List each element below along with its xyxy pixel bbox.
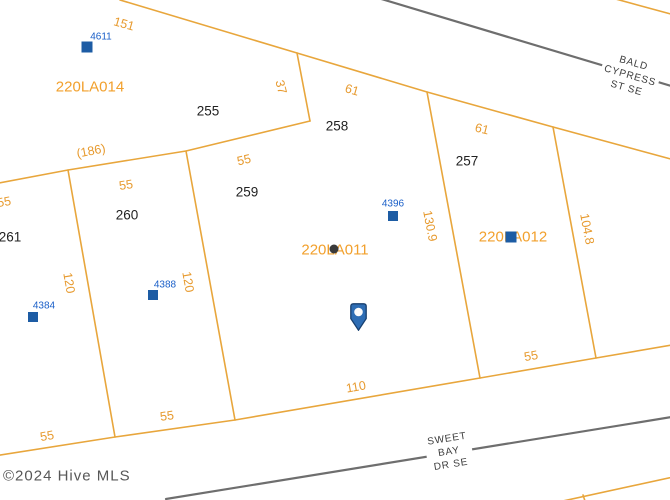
lot-number-258: 258 xyxy=(326,119,349,134)
lot-number-259: 259 xyxy=(236,185,259,200)
address-marker-4388[interactable] xyxy=(148,290,158,300)
parcel-label-220la014: 220LA014 xyxy=(56,79,124,96)
copyright-watermark: ©2024 Hive MLS xyxy=(3,468,131,485)
boundary-southeast-corner xyxy=(549,476,670,500)
address-label-4384: 4384 xyxy=(33,301,55,312)
road-sweet-bay-line xyxy=(166,416,670,499)
dimension-55-lot260-bottom: 55 xyxy=(159,408,175,424)
lot-number-257: 257 xyxy=(456,154,479,169)
boundary-186-line xyxy=(0,121,310,184)
address-label-4396: 4396 xyxy=(382,199,404,210)
lot-number-261: 261 xyxy=(0,230,21,245)
street-label-sweet-bay: SWEET BAY DR SE xyxy=(423,428,474,476)
dimension-55-lot261-bottom: 55 xyxy=(39,428,55,444)
address-label-4611: 4611 xyxy=(90,32,112,43)
map-pin-dot xyxy=(354,308,363,317)
address-marker-4611[interactable] xyxy=(82,42,93,53)
dimension-55-lot260-top: 55 xyxy=(118,177,134,193)
boundary-south xyxy=(0,344,670,456)
lot-number-255: 255 xyxy=(197,104,220,119)
lot-number-260: 260 xyxy=(116,208,139,223)
boundary-lot255-east xyxy=(297,53,310,121)
map-pin-icon[interactable] xyxy=(350,303,367,331)
parcel-center-marker-220la012[interactable] xyxy=(506,232,517,243)
boundary-north xyxy=(120,0,670,161)
boundary-lot261-260 xyxy=(68,170,115,437)
boundary-northeast-corner xyxy=(612,0,670,16)
plat-map[interactable]: BALD CYPRESS ST SE SWEET BAY DR SE 220LA… xyxy=(0,0,670,500)
address-marker-4396[interactable] xyxy=(388,211,398,221)
address-label-4388: 4388 xyxy=(154,280,176,291)
parcel-center-dot[interactable] xyxy=(330,245,339,254)
dimension-55-220la012-bottom: 55 xyxy=(523,348,539,364)
dimension-55-left-edge: 55 xyxy=(0,194,12,210)
address-marker-4384[interactable] xyxy=(28,312,38,322)
